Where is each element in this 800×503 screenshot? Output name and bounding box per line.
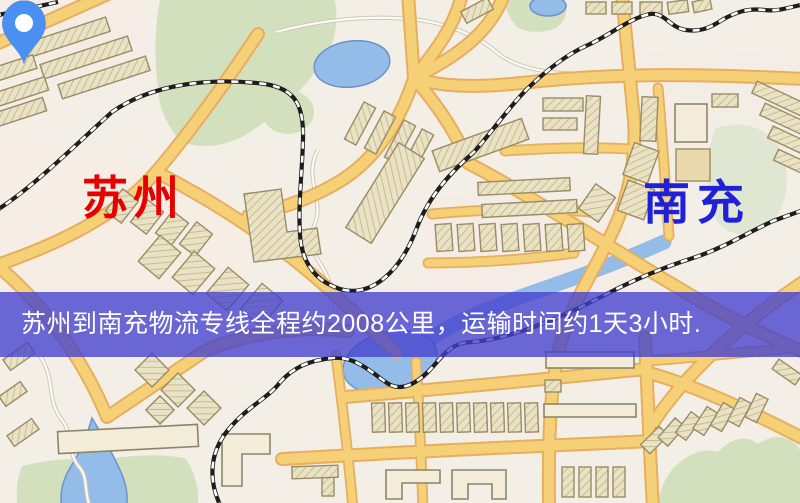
logistics-route-map: 苏州 南充 苏州到南充物流专线全程约2008公里，运输时间约1天3小时. xyxy=(0,0,800,503)
route-info-banner: 苏州到南充物流专线全程约2008公里，运输时间约1天3小时. xyxy=(0,292,800,357)
destination-label: 南充 xyxy=(643,181,751,228)
destination-pin-shape xyxy=(2,1,45,65)
map-canvas xyxy=(0,0,800,503)
route-info-text: 苏州到南充物流专线全程约2008公里，运输时间约1天3小时. xyxy=(0,292,800,357)
destination-marker-icon[interactable] xyxy=(0,0,48,66)
origin-label: 苏州 xyxy=(82,176,184,222)
